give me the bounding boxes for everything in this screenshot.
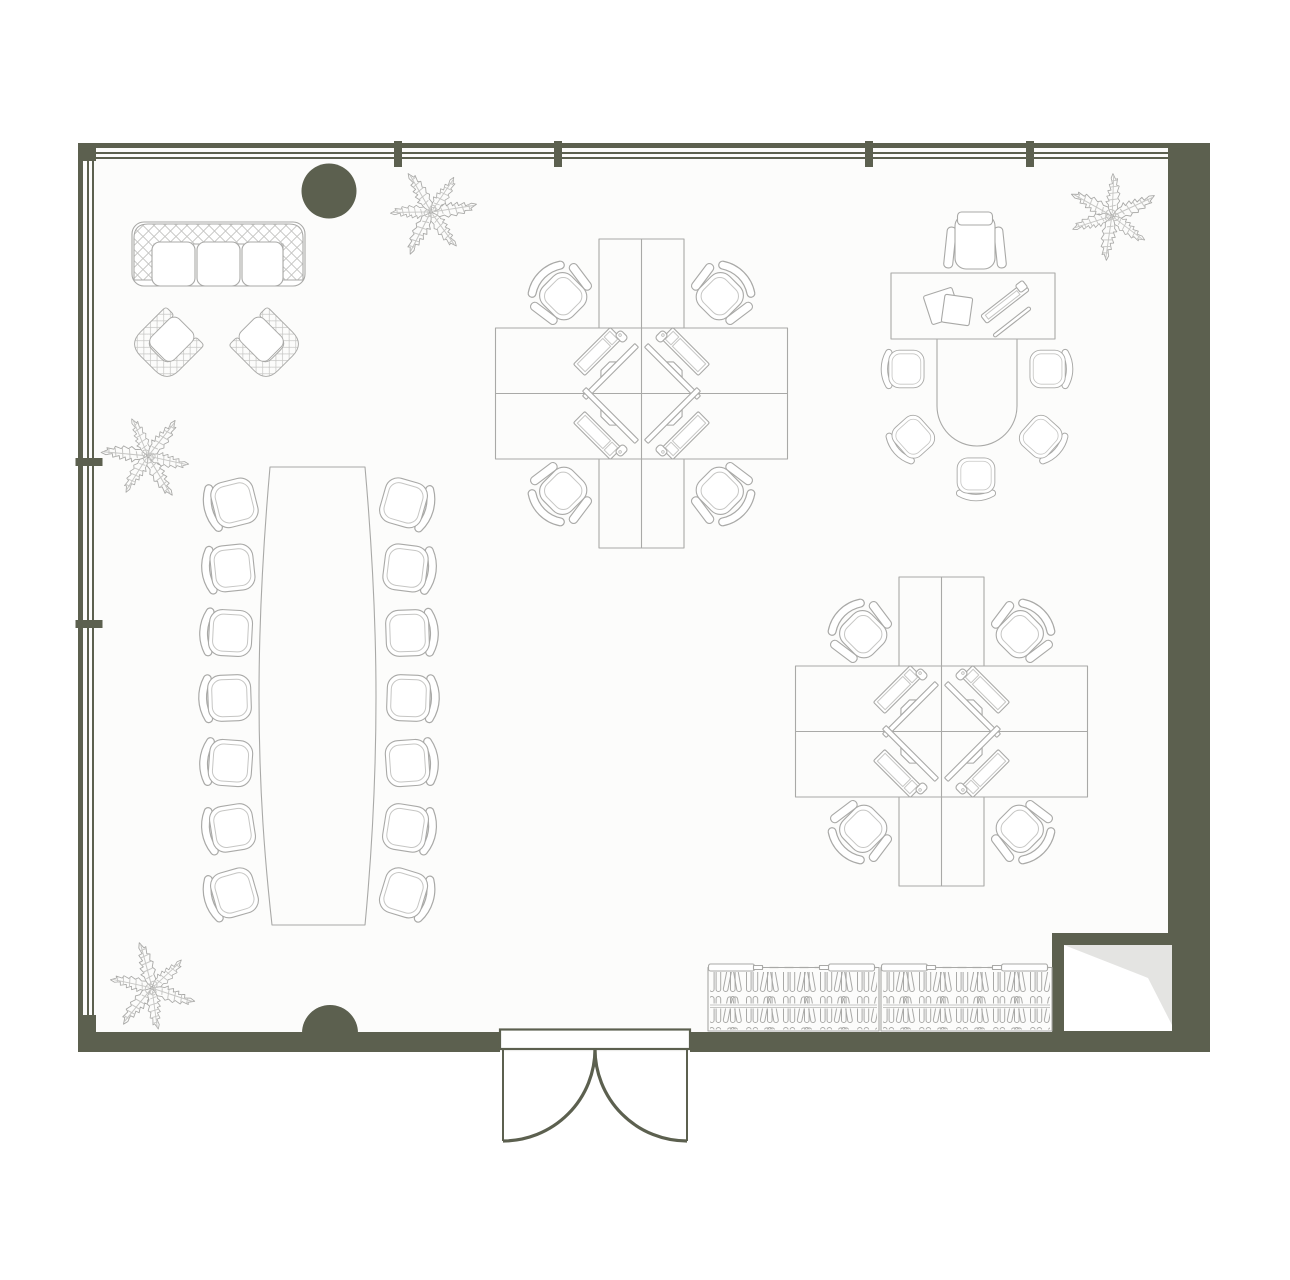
chair [884, 350, 924, 388]
window-mullion [865, 141, 873, 167]
chair [203, 543, 256, 594]
conference-table [259, 467, 376, 925]
executive-desk [891, 273, 1055, 339]
window-mullion [394, 141, 402, 167]
chair [1030, 350, 1070, 388]
window-mullion [76, 620, 103, 628]
chair [385, 609, 435, 657]
chair [381, 542, 435, 594]
chair [386, 674, 436, 722]
workstation-cluster [496, 239, 788, 548]
wall-right [1168, 143, 1210, 1052]
bookcase [708, 964, 879, 1031]
chair [957, 458, 995, 498]
utility-shaft [1052, 933, 1210, 1052]
door-swing-arc [503, 1049, 595, 1141]
chair [202, 609, 253, 657]
chair [202, 802, 257, 855]
floor-plan-canvas [0, 0, 1290, 1280]
workstation-cluster [796, 577, 1088, 886]
window-mullion [76, 458, 103, 466]
entrance-double-door[interactable] [500, 1030, 690, 1142]
chair [384, 738, 435, 787]
sofa-cushion [242, 242, 283, 286]
sofa-cushion [152, 242, 195, 286]
column-circle [302, 164, 357, 219]
sofa-cushion [197, 242, 240, 286]
bookcase [881, 964, 1052, 1031]
door-swing-arc [595, 1049, 687, 1141]
window-mullion [554, 141, 562, 167]
executive-meeting-table [937, 339, 1017, 446]
chair [202, 674, 252, 722]
chair [202, 738, 253, 787]
window-mullion [1026, 141, 1034, 167]
lounge-sofa [132, 222, 305, 286]
chair [381, 802, 436, 855]
